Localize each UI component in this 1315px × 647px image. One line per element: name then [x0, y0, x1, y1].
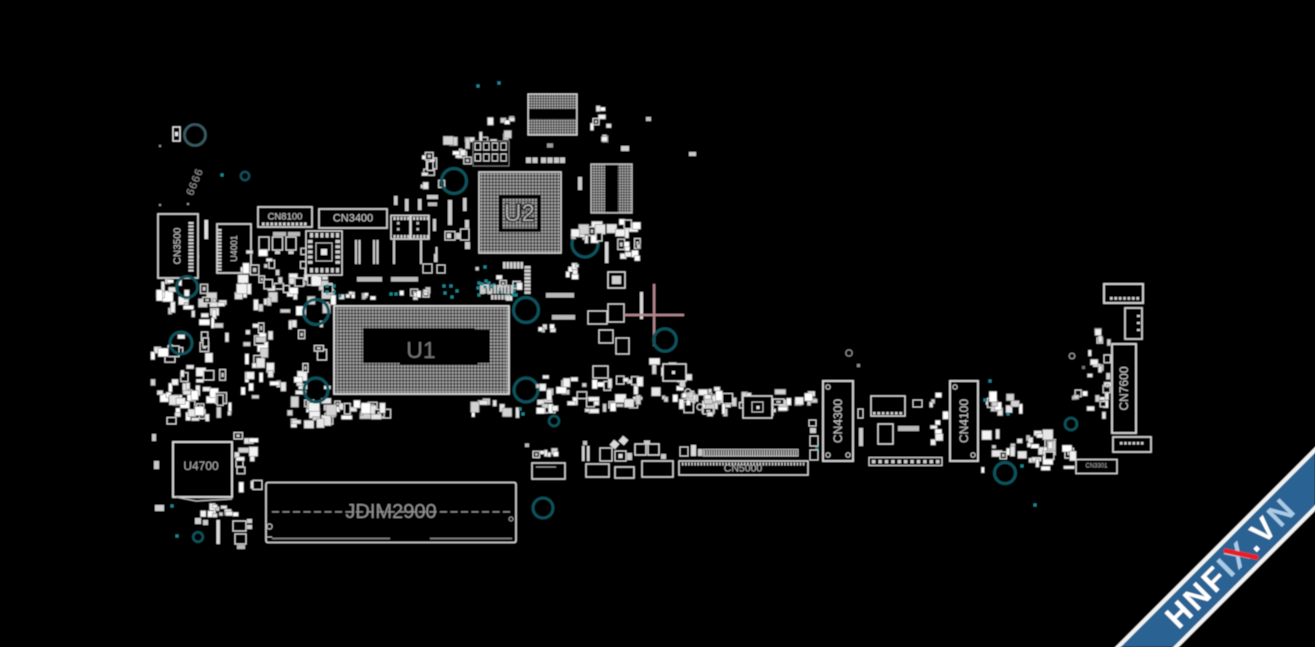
svg-text:JDIM2900: JDIM2900	[345, 501, 436, 523]
svg-text:CN5000: CN5000	[724, 463, 763, 475]
svg-text:U1: U1	[406, 337, 435, 363]
svg-text:U2: U2	[504, 200, 535, 227]
svg-text:CN3301: CN3301	[1085, 464, 1108, 470]
svg-text:CN4100: CN4100	[957, 399, 971, 443]
svg-text:CN8100: CN8100	[268, 212, 303, 223]
svg-text:CN4300: CN4300	[831, 399, 845, 443]
svg-text:CN3400: CN3400	[333, 213, 373, 225]
svg-text:U4001: U4001	[229, 235, 239, 262]
svg-text:U4700: U4700	[183, 459, 219, 473]
svg-text:CN7600: CN7600	[1117, 366, 1131, 410]
svg-text:CN3500: CN3500	[173, 227, 184, 264]
